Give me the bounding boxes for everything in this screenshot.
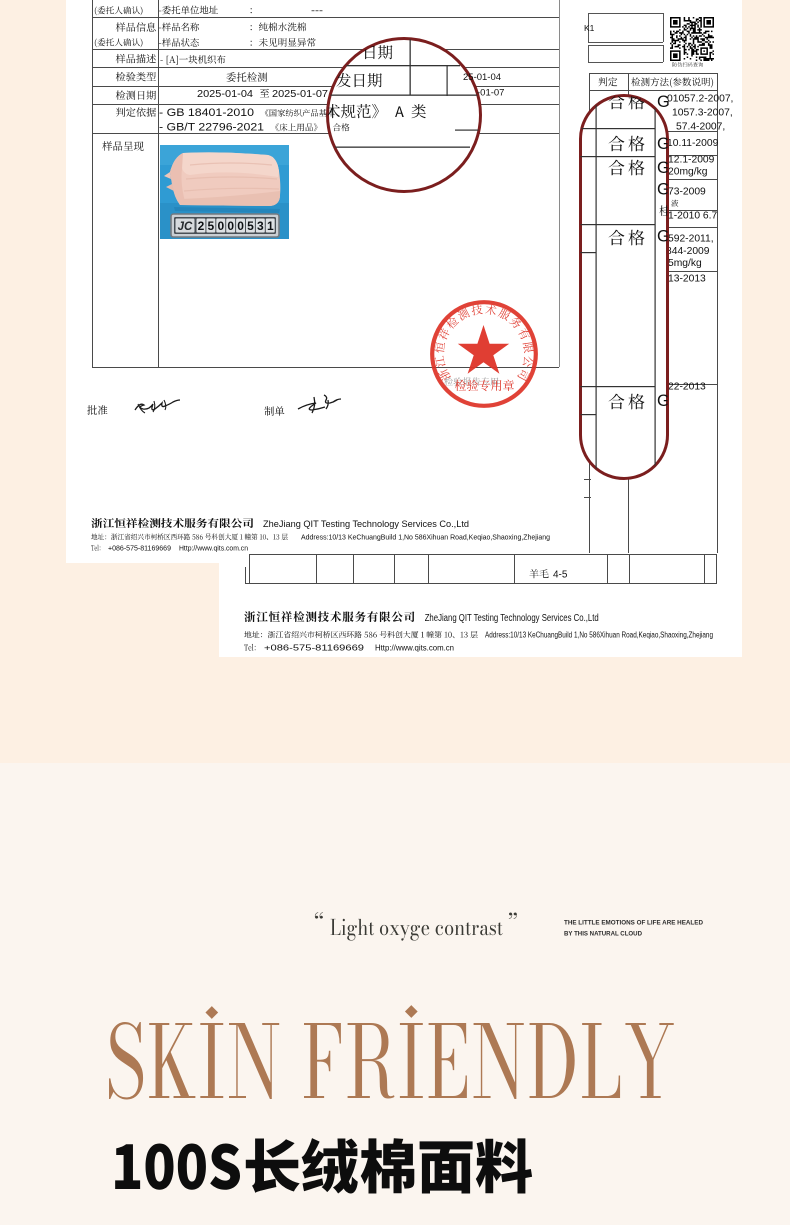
svg-text:2025-01-04: 2025-01-04: [197, 89, 253, 100]
svg-text:ZheJiang QIT Testing Technolog: ZheJiang QIT Testing Technology Services…: [425, 613, 599, 624]
svg-text:---: ---: [311, 5, 323, 16]
svg-text:+086-575-81169669: +086-575-81169669: [108, 544, 171, 553]
svg-text:THE LITTLE EMOTIONS OF LIFE AR: THE LITTLE EMOTIONS OF LIFE ARE HEALED: [564, 920, 703, 927]
svg-text:-01-07: -01-07: [477, 88, 504, 99]
svg-text:4-5: 4-5: [553, 570, 568, 581]
svg-text:BY THIS NATURAL CLOUD: BY THIS NATURAL CLOUD: [564, 931, 642, 938]
svg-text:G: G: [657, 228, 670, 246]
svg-text:Http://www.qits.com.cn: Http://www.qits.com.cn: [179, 544, 248, 553]
svg-text:G: G: [657, 93, 670, 111]
svg-text:G: G: [657, 181, 670, 199]
svg-text:ZheJiang QIT Testing Technolog: ZheJiang QIT Testing Technology Services…: [263, 519, 469, 529]
svg-text:Address:10/13 KeChuangBuild 1,: Address:10/13 KeChuangBuild 1,No 586Xihu…: [485, 631, 713, 640]
svg-text:25-01-04: 25-01-04: [463, 72, 501, 83]
svg-text:2025-01-07: 2025-01-07: [272, 89, 328, 100]
svg-text:- GB/T 22796-2021: - GB/T 22796-2021: [159, 122, 264, 134]
svg-text:G: G: [657, 159, 670, 177]
svg-text:G: G: [657, 135, 670, 153]
svg-text:G: G: [657, 392, 670, 410]
svg-text:- GB 18401-2010: - GB 18401-2010: [159, 107, 254, 119]
svg-text:+086-575-81169669: +086-575-81169669: [264, 643, 364, 653]
svg-text:Address:10/13 KeChuangBuild 1,: Address:10/13 KeChuangBuild 1,No 586Xihu…: [301, 533, 550, 542]
svg-text:K1: K1: [584, 23, 595, 33]
svg-text:Http://www.qits.com.cn: Http://www.qits.com.cn: [375, 643, 454, 653]
